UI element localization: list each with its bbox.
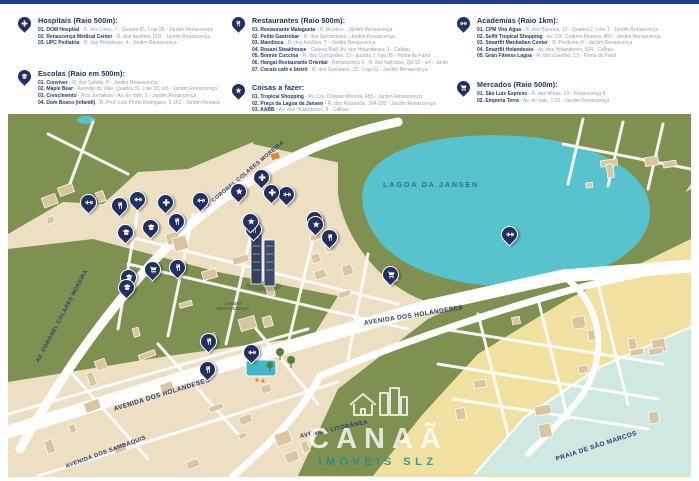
- legend-item: 02. Petite Gastrobar - R. dos Sarnambias…: [252, 34, 448, 41]
- legend-section-coisas: Coisas a fazer:01. Tropical Shopping - A…: [230, 83, 448, 114]
- building-block: [587, 330, 595, 341]
- building-block: [571, 316, 586, 330]
- legend-item-address: - R. dos Gaviões, 13 - Ponta do Farol: [532, 53, 616, 59]
- legend-item-name: 02. Renascença Medical Center: [38, 34, 112, 40]
- house-logo-icon: [347, 386, 409, 420]
- legend-column-2: Academias (Raio 1km):01. CPM Vira Água -…: [455, 16, 689, 104]
- legend-item-address: - R. dos Lírios, 7 - Quadra 81, Loja 05 …: [79, 27, 213, 33]
- legend-item: 07. Cocais café e bistrô - R. dos Guriat…: [252, 67, 448, 74]
- legend-item-name: 05. Bonnie Cuccina: [252, 53, 298, 59]
- watermark-logo: CANAÃ IMÓVEIS SLZ: [291, 386, 465, 468]
- legend-item-address: - R. das Perpétuas, 4 - Jardim Renascenç…: [79, 40, 176, 46]
- legend-section-escolas: Escolas (Raio em 500m):01. Conviver - R.…: [16, 69, 220, 106]
- legend-item-address: - R. Prof. Luís Pinho Rodrigues, 5-161 -…: [95, 100, 220, 106]
- building-block: [538, 423, 552, 438]
- legend-item-name: 01. Restaurante Malagueta: [252, 27, 315, 33]
- legend-item-name: 01. Tropical Shopping: [252, 94, 304, 100]
- building-block: [578, 365, 589, 374]
- legend-item-address: - Av. Col. Colares Moreira, 455 - Jardim…: [304, 94, 422, 100]
- building-block: [511, 316, 520, 324]
- hospitais-pin-icon: [15, 14, 33, 32]
- legend-item-address: - Galeria Mall, Av. dos Holandeses, 1 - …: [306, 47, 409, 53]
- legend-item-address: - Av. Col. Colares Moreira, 455 - Jardim…: [543, 34, 661, 40]
- legend-item-name: 06. Hangai Restaurante Oriental: [252, 60, 328, 66]
- legend-item-address: - Avenida do Vale, Quadra 31, Lote 20, s…: [73, 86, 217, 92]
- legend-item: 01. CPM Vira Água - R. dos Bicudos, 12 -…: [477, 27, 689, 34]
- academias-pin-icon: [454, 14, 472, 32]
- legend-item-address: - Av. dos Holandeses, 504 - Calhau: [534, 47, 614, 53]
- legend-item-name: 01. CPM Vira Água: [477, 27, 521, 33]
- legend-item-address: - R. dos Rouxinóis, 204-292 - Jardim Ren…: [323, 101, 435, 107]
- legend-item: 05. Bonnie Cuccina - R. dos Corrupiões, …: [252, 53, 448, 60]
- legend-section-mercados: Mercados (Raio 500m):01. São Luís Expres…: [455, 80, 689, 104]
- legend-item-name: 04. Dom Bosco (infantil): [38, 100, 95, 106]
- legend-item: 02. Selfit Tropical Shopping - Av. Col. …: [477, 34, 689, 41]
- legend-item: 04. Rosani Steakhouse - Galeria Mall, Av…: [252, 47, 448, 54]
- watermark-brand: CANAÃ: [291, 425, 465, 454]
- legend-item-address: - R. dos Bicudos, 12 - Quadra 2, Lote 1 …: [521, 27, 658, 33]
- legend-panel: Hospitais (Raio 500m):01. DOM Hospital -…: [0, 4, 699, 114]
- legend-item-name: 02. Praça da Lagoa da Jansen: [252, 101, 323, 107]
- legend-item-address: - R. Bicudos - Jardim Renascença: [315, 27, 392, 33]
- legend-item-name: 04. Rosani Steakhouse: [252, 47, 306, 53]
- legend-section-academias: Academias (Raio 1km):01. CPM Vira Água -…: [455, 16, 689, 60]
- legend-item-name: 01. Conviver: [38, 80, 68, 86]
- legend-item-name: 03. Smartfit Manhattan Center: [477, 40, 548, 46]
- legend-item-address: - R. dos Guriatans, 23 - Loja 01 - Jardi…: [308, 67, 428, 73]
- legend-item-address: - Renascença II - R. dos Narcisos, Qd 12…: [328, 60, 448, 66]
- legend-item: 02. Maple Bear - Avenida do Vale, Quadra…: [38, 86, 220, 93]
- legend-section-title: Hospitais (Raio 500m):: [38, 16, 220, 25]
- building-block: [628, 338, 637, 350]
- legend-item-name: 03. Mandioca: [252, 40, 283, 46]
- legend-item-name: 02. Selfit Tropical Shopping: [477, 34, 543, 40]
- legend-item: 03. Mandioca - R. dos Azulões, 7 - Jardi…: [252, 40, 448, 47]
- map-area: LAGOA DA JANSEN AV. CORONEL COLARES MORE…: [8, 114, 691, 477]
- legend-item-name: 02. Petite Gastrobar: [252, 34, 299, 40]
- legend-item: 03. UPC Pediatria - R. das Perpétuas, 4 …: [38, 40, 220, 47]
- restaurantes-pin-icon: [229, 14, 247, 32]
- building-block: [644, 156, 659, 167]
- legend-item-name: 04. Smartfit Holandeses: [477, 47, 534, 53]
- legend-item-name: 01. São Luís Express: [477, 91, 527, 97]
- legend-item-address: - R. dos Sarnambias - Jardim Renascença: [299, 34, 395, 40]
- legend-item-name: 02. Emporia Terra: [477, 98, 519, 104]
- legend-column-0: Hospitais (Raio 500m):01. DOM Hospital -…: [16, 16, 220, 106]
- building-block: [586, 182, 593, 188]
- legend-item: 01. DOM Hospital - R. dos Lírios, 7 - Qu…: [38, 27, 220, 34]
- legend-item: 03. Smartfit Manhattan Center - R. Perdi…: [477, 40, 689, 47]
- label-lagoa-da-jansen: LAGOA DA JANSEN: [383, 180, 479, 189]
- legend-item-address: - R. das Minas, 19 - Renascença II: [527, 91, 605, 97]
- legend-item: 03. Crescimento - Rua Jornalista - Av. d…: [38, 93, 220, 100]
- legend-item-address: - R. dos Azulões, 503 - Jardim Renascenç…: [112, 34, 210, 40]
- legend-item-name: 02. Maple Bear: [38, 86, 73, 92]
- legend-section-title: Mercados (Raio 500m):: [477, 80, 689, 89]
- watermark-subtitle: IMÓVEIS SLZ: [291, 456, 465, 468]
- legend-item-address: - R. Perdizes, 0 - Jardim Renascença: [548, 40, 632, 46]
- label-jardim-renascenca: JARDIM RENASCENÇA: [210, 302, 256, 312]
- legend-item: 05. Gran Fitness Lagoa - R. dos Gaviões,…: [477, 53, 689, 60]
- legend-section-hospitais: Hospitais (Raio 500m):01. DOM Hospital -…: [16, 16, 220, 47]
- legend-item-address: - Rua Jornalista - Av. do Vale, 2 - Jard…: [77, 93, 197, 99]
- legend-item-name: 03. UPC Pediatria: [38, 40, 79, 46]
- infographic-canvas: Hospitais (Raio 500m):01. DOM Hospital -…: [0, 0, 699, 481]
- building-block: [473, 379, 486, 389]
- legend-item-name: 03. AABB: [252, 107, 275, 113]
- legend-item-address: - Av. dos Holandeses, 8 - Calhau: [275, 107, 349, 113]
- legend-item: 01. São Luís Express - R. das Minas, 19 …: [477, 91, 689, 98]
- legend-item-address: - Av. do Vale, 1-91 - Jardim Renascença: [519, 98, 609, 104]
- legend-section-title: Escolas (Raio em 500m):: [38, 69, 220, 78]
- legend-item-address: - R. dos Azulões, 7 - Jardim Renascença: [283, 40, 375, 46]
- legend-item-address: - R. dos Sabiás, 6 - Jardim Renascença: [68, 80, 158, 86]
- legend-item-name: 03. Crescimento: [38, 93, 77, 99]
- legend-item: 02. Renascença Medical Center - R. dos A…: [38, 34, 220, 41]
- mercados-pin-icon: [454, 78, 472, 96]
- legend-section-title: Academias (Raio 1km):: [477, 16, 689, 25]
- legend-section-restaurantes: Restaurantes (Raio 500m):01. Restaurante…: [230, 16, 448, 73]
- legend-item: 04. Dom Bosco (infantil) - R. Prof. Luís…: [38, 100, 220, 107]
- legend-column-1: Restaurantes (Raio 500m):01. Restaurante…: [230, 16, 448, 114]
- legend-item: 06. Hangai Restaurante Oriental - Renasc…: [252, 60, 448, 67]
- legend-item-address: - R. dos Corrupiões, 13 - quadra 1, loja…: [298, 53, 430, 59]
- legend-item: 04. Smartfit Holandeses - Av. dos Holand…: [477, 47, 689, 54]
- legend-item-name: 05. Gran Fitness Lagoa: [477, 53, 532, 59]
- legend-item: 01. Restaurante Malagueta - R. Bicudos -…: [252, 27, 448, 34]
- legend-section-title: Coisas a fazer:: [252, 83, 448, 92]
- legend-item-name: 01. DOM Hospital: [38, 27, 79, 33]
- legend-item: 01. Tropical Shopping - Av. Col. Colares…: [252, 94, 448, 101]
- legend-item: 01. Conviver - R. dos Sabiás, 6 - Jardim…: [38, 80, 220, 87]
- building-block: [648, 411, 660, 424]
- legend-item-name: 07. Cocais café e bistrô: [252, 67, 308, 73]
- legend-item: 02. Praça da Lagoa da Jansen - R. dos Ro…: [252, 101, 448, 108]
- coisas-pin-icon: [229, 81, 247, 99]
- building-block: [606, 163, 615, 178]
- legend-section-title: Restaurantes (Raio 500m):: [252, 16, 448, 25]
- escolas-pin-icon: [15, 67, 33, 85]
- legend-item: 02. Emporia Terra - Av. do Vale, 1-91 - …: [477, 98, 689, 105]
- legend-item: 03. AABB - Av. dos Holandeses, 8 - Calha…: [252, 107, 448, 114]
